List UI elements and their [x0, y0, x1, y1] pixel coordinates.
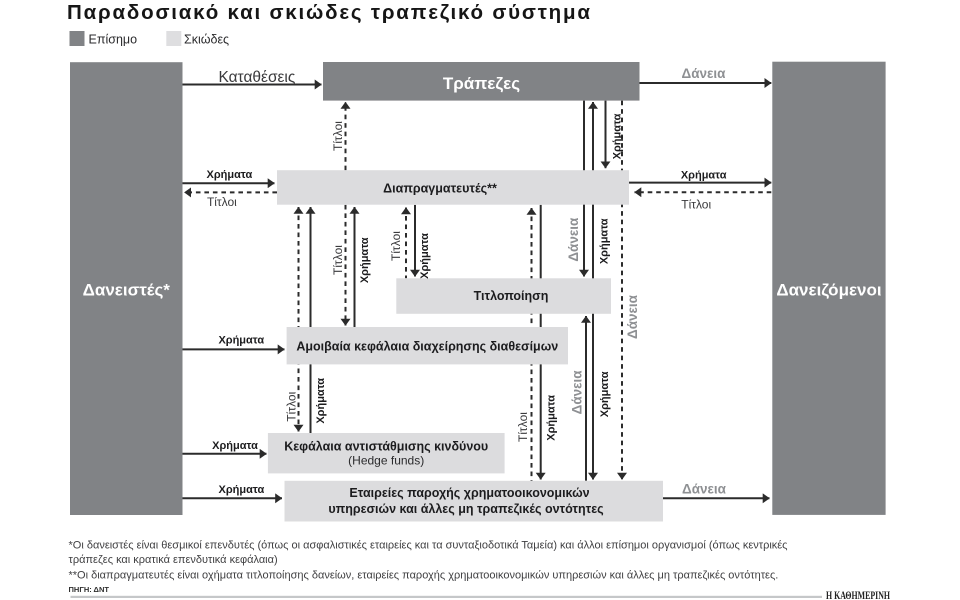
svg-text:*Οι δανειστές είναι θεσμικοί ε: *Οι δανειστές είναι θεσμικοί επενδυτές (… [69, 540, 788, 552]
svg-text:Τίτλοι: Τίτλοι [331, 121, 345, 151]
svg-text:Χρήματα: Χρήματα [545, 395, 557, 441]
svg-text:Χρήματα: Χρήματα [219, 484, 265, 496]
svg-text:Χρήματα: Χρήματα [315, 378, 327, 424]
svg-text:Δανειζόμενοι: Δανειζόμενοι [776, 281, 881, 300]
svg-text:Τίτλοι: Τίτλοι [389, 231, 403, 261]
svg-text:Χρήματα: Χρήματα [599, 371, 611, 417]
svg-text:Καταθέσεις: Καταθέσεις [218, 69, 295, 86]
svg-text:Σκιώδες: Σκιώδες [184, 33, 229, 47]
svg-text:Αμοιβαία κεφάλαια διαχείρησης: Αμοιβαία κεφάλαια διαχείρησης διαθεσίμων [296, 339, 558, 353]
svg-text:Δάνεια: Δάνεια [570, 370, 585, 415]
svg-text:Κεφάλαια αντιστάθμισης κινδύνο: Κεφάλαια αντιστάθμισης κινδύνου [284, 440, 488, 454]
svg-text:Η ΚΑΘΗΜΕΡΙΝΗ: Η ΚΑΘΗΜΕΡΙΝΗ [826, 588, 890, 600]
svg-text:Τιτλοποίηση: Τιτλοποίηση [474, 289, 549, 303]
svg-text:Δάνεια: Δάνεια [682, 482, 727, 497]
svg-text:Χρήματα: Χρήματα [611, 113, 623, 159]
svg-text:Χρήματα: Χρήματα [207, 169, 253, 181]
svg-text:Δάνεια: Δάνεια [682, 66, 727, 81]
svg-text:Χρήματα: Χρήματα [212, 440, 258, 452]
svg-text:Χρήματα: Χρήματα [599, 218, 611, 264]
svg-text:Τίτλοι: Τίτλοι [331, 245, 345, 275]
svg-text:Χρήματα: Χρήματα [359, 237, 371, 283]
svg-text:Εταιρείες παροχής χρηματοοικον: Εταιρείες παροχής χρηματοοικονομικών [349, 486, 589, 500]
svg-text:Επίσημο: Επίσημο [89, 33, 138, 47]
svg-text:Χρήματα: Χρήματα [419, 233, 431, 279]
svg-text:Διαπραγματευτές**: Διαπραγματευτές** [383, 182, 497, 196]
svg-text:Χρήματα: Χρήματα [218, 334, 264, 346]
svg-text:(Hedge funds): (Hedge funds) [348, 454, 424, 468]
svg-text:Τίτλοι: Τίτλοι [516, 412, 530, 442]
svg-text:Παραδοσιακό και σκιώδες τραπεζ: Παραδοσιακό και σκιώδες τραπεζικό σύστημ… [67, 1, 592, 24]
svg-text:Τράπεζες: Τράπεζες [443, 74, 520, 93]
svg-text:τράπεζες και κρατικά επενδυτικ: τράπεζες και κρατικά επενδυτικά κεφάλαια… [69, 554, 278, 566]
svg-text:**Οι διαπραγματευτές είναι οχή: **Οι διαπραγματευτές είναι οχήματα τιτλο… [69, 569, 779, 581]
svg-text:Χρήματα: Χρήματα [681, 169, 727, 181]
svg-text:ΠΗΓΗ: ΔΝΤ: ΠΗΓΗ: ΔΝΤ [69, 585, 110, 594]
svg-text:Δάνεια: Δάνεια [566, 217, 581, 262]
svg-text:Τίτλοι: Τίτλοι [681, 198, 711, 212]
svg-text:Τίτλοι: Τίτλοι [207, 195, 237, 209]
svg-text:Δάνεια: Δάνεια [625, 294, 640, 339]
svg-text:υπηρεσιών και άλλες μη τραπεζι: υπηρεσιών και άλλες μη τραπεζικές οντότη… [328, 502, 603, 516]
svg-text:Τίτλοι: Τίτλοι [285, 391, 299, 421]
svg-text:Δανειστές*: Δανειστές* [83, 281, 171, 300]
